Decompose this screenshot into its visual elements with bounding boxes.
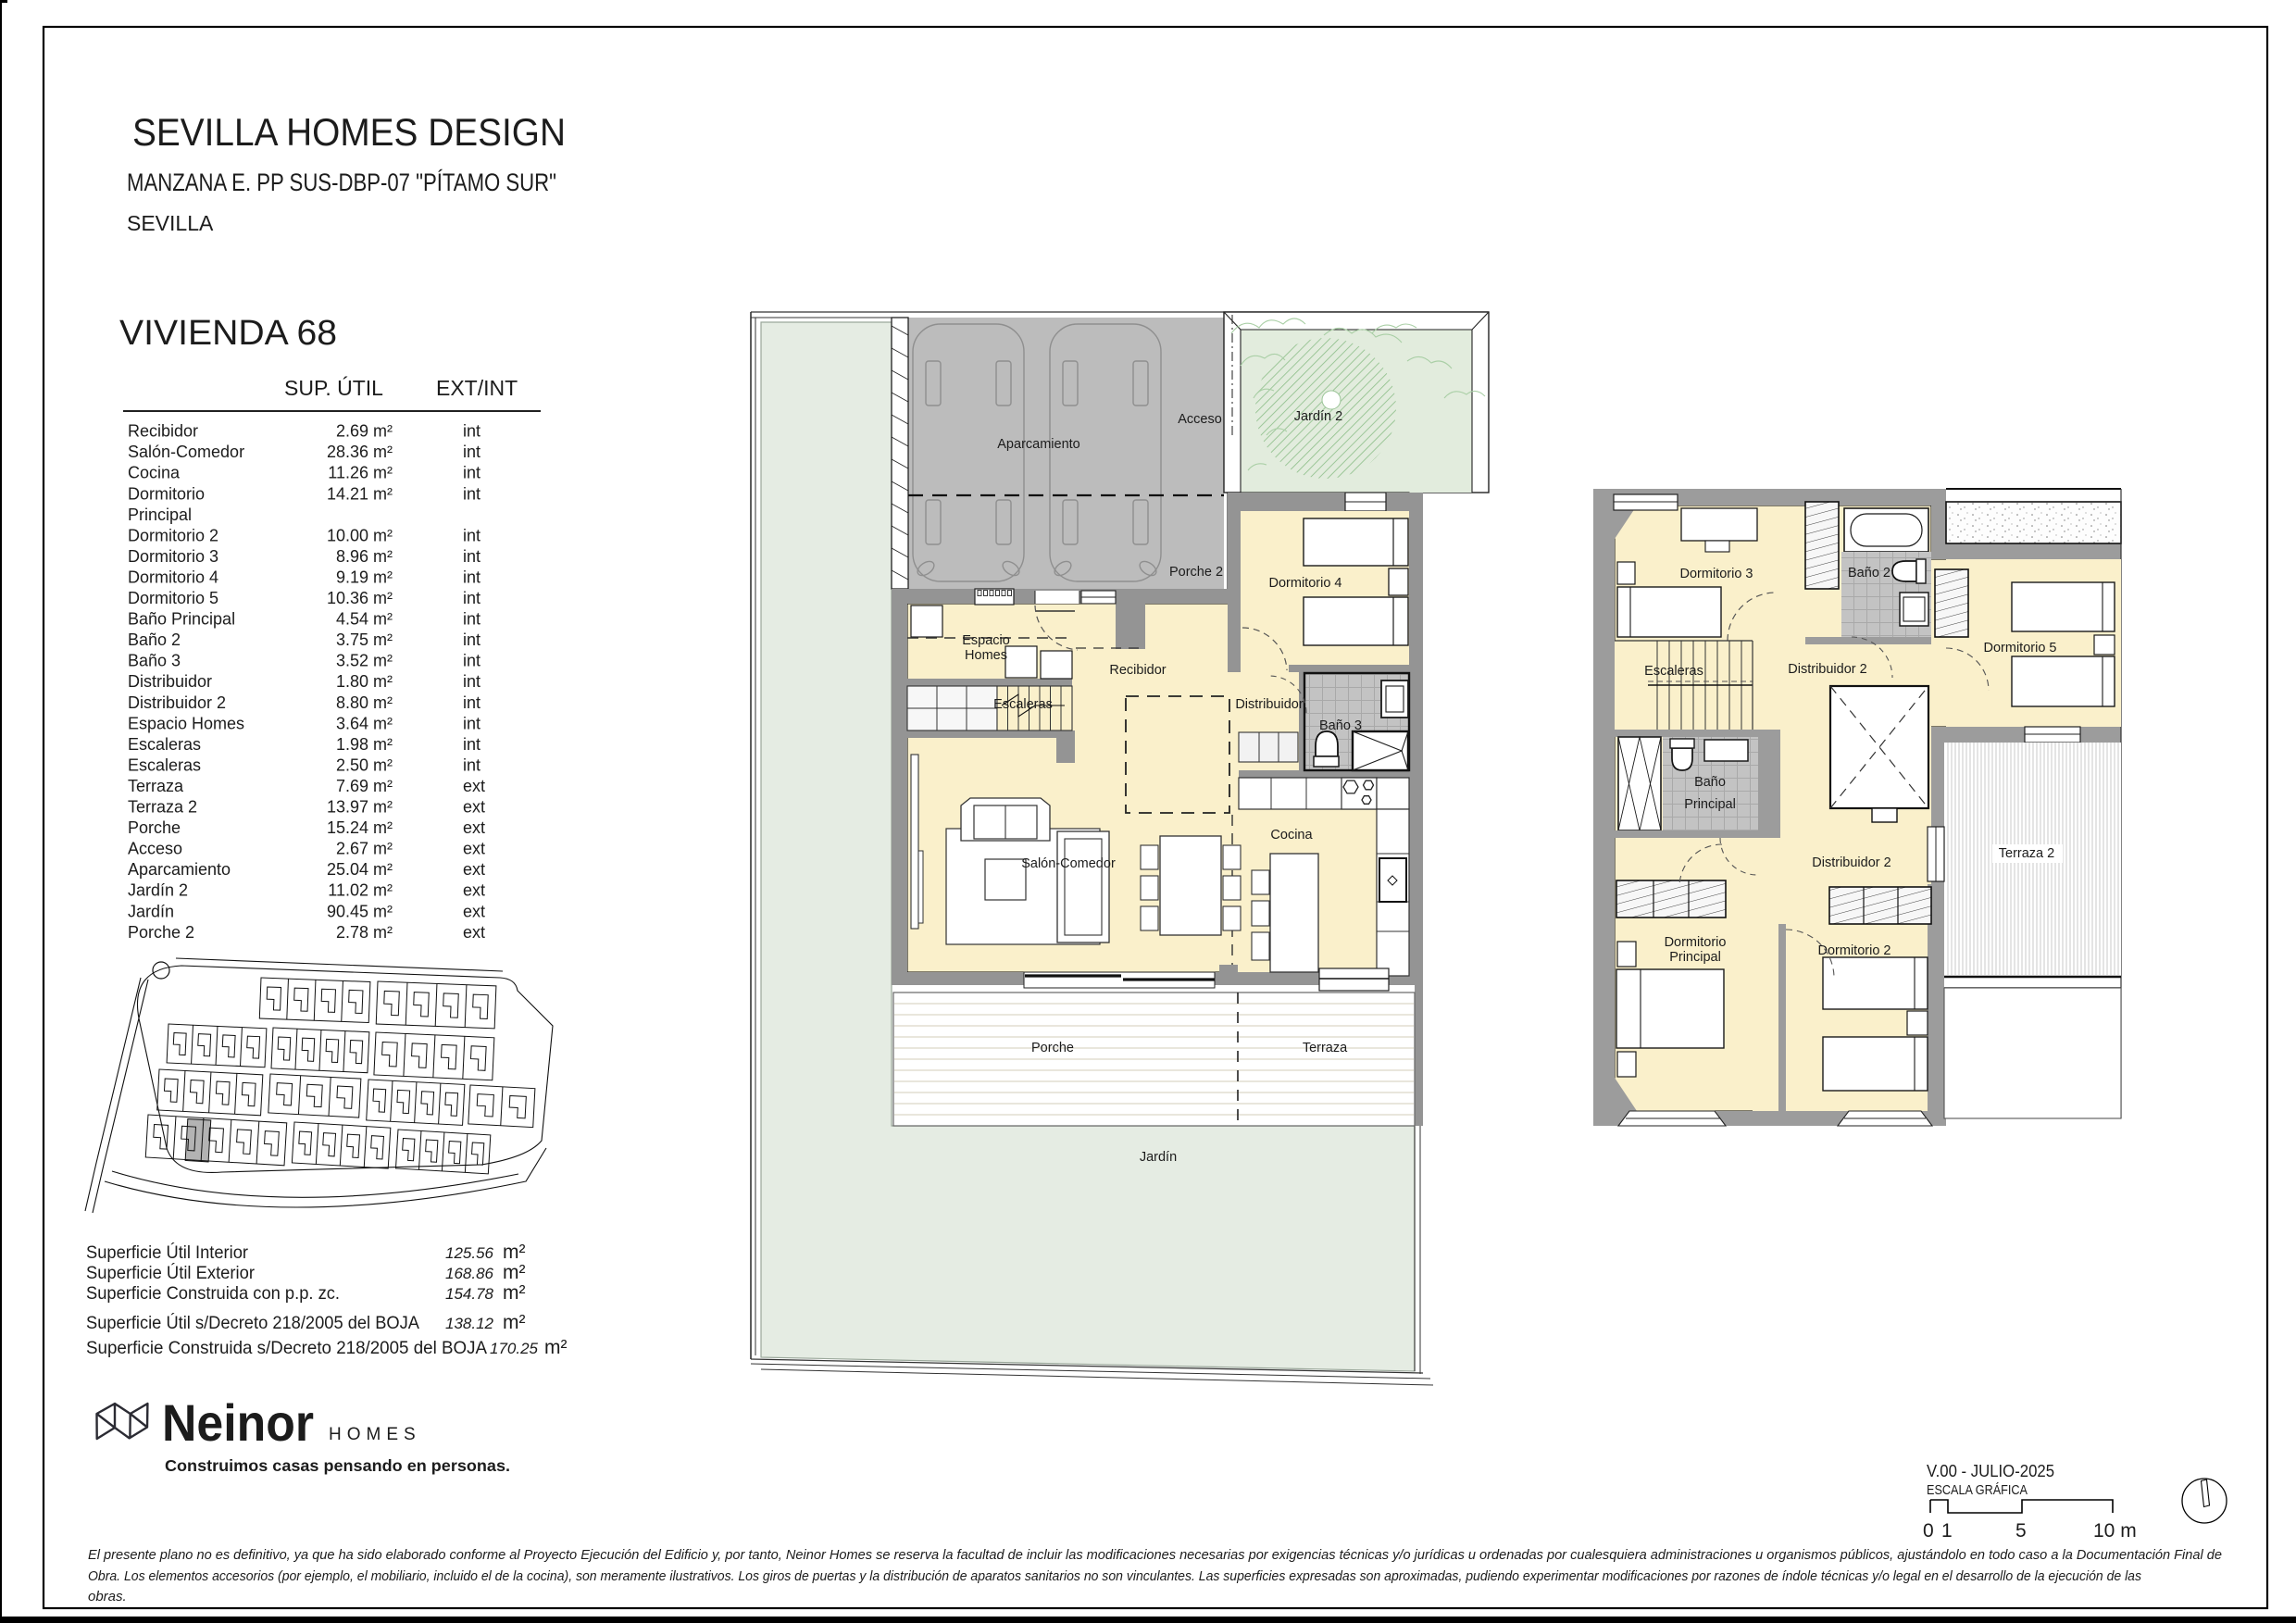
svg-text:Dormitorio 5: Dormitorio 5 (128, 589, 218, 607)
svg-text:Dormitorio 4: Dormitorio 4 (128, 568, 218, 586)
svg-text:int: int (463, 672, 480, 691)
svg-text:8.96 m²: 8.96 m² (336, 547, 393, 566)
svg-text:int: int (463, 610, 480, 629)
svg-text:m²: m² (503, 1242, 526, 1263)
svg-text:1: 1 (1941, 1520, 1953, 1542)
svg-text:Baño 3: Baño 3 (128, 652, 181, 670)
svg-text:Jardín 2: Jardín 2 (128, 881, 188, 900)
svg-text:int: int (463, 422, 480, 441)
svg-text:SUP. ÚTIL: SUP. ÚTIL (284, 376, 383, 400)
svg-text:m²: m² (503, 1262, 526, 1283)
svg-text:13.97 m²: 13.97 m² (327, 798, 393, 817)
svg-text:ext: ext (463, 902, 485, 920)
svg-text:Baño 3: Baño 3 (1319, 718, 1362, 733)
svg-text:Superficie Útil s/Decreto 218/: Superficie Útil s/Decreto 218/2005 del B… (86, 1312, 419, 1333)
svg-text:Dormitorio 3: Dormitorio 3 (1680, 567, 1753, 581)
svg-text:int: int (463, 526, 480, 544)
svg-text:Dormitorio 2: Dormitorio 2 (1818, 943, 1891, 958)
svg-text:V.00 - JULIO-2025: V.00 - JULIO-2025 (1927, 1462, 2054, 1480)
svg-text:Terraza 2: Terraza 2 (1999, 846, 2054, 861)
svg-text:int: int (463, 589, 480, 607)
svg-text:1.98 m²: 1.98 m² (336, 735, 393, 754)
svg-text:Espacio: Espacio (962, 633, 1010, 648)
svg-text:m²: m² (544, 1337, 568, 1358)
svg-text:Escaleras: Escaleras (993, 697, 1053, 712)
svg-text:int: int (463, 547, 480, 566)
svg-text:Dormitorio 4: Dormitorio 4 (1269, 576, 1342, 591)
svg-text:int: int (463, 630, 480, 649)
svg-text:2.67 m²: 2.67 m² (336, 840, 393, 858)
svg-text:Dormitorio 2: Dormitorio 2 (128, 526, 218, 544)
svg-text:Acceso: Acceso (1178, 412, 1222, 427)
svg-text:Dormitorio 5: Dormitorio 5 (1984, 641, 2057, 655)
svg-text:ext: ext (463, 777, 485, 795)
svg-text:10 m: 10 m (2093, 1520, 2137, 1542)
svg-text:El presente plano no es defini: El presente plano no es definitivo, ya q… (88, 1547, 2222, 1563)
svg-text:ext: ext (463, 798, 485, 817)
svg-text:Salón-Comedor: Salón-Comedor (1021, 856, 1116, 871)
svg-text:Superficie Útil Interior: Superficie Útil Interior (86, 1242, 248, 1263)
svg-text:Distribuidor: Distribuidor (1235, 697, 1303, 712)
svg-text:Superficie Construida s/Decret: Superficie Construida s/Decreto 218/2005… (86, 1338, 487, 1358)
svg-text:Superficie Útil Exterior: Superficie Útil Exterior (86, 1262, 255, 1283)
svg-text:Dormitorio: Dormitorio (1665, 935, 1727, 950)
svg-text:2.69 m²: 2.69 m² (336, 422, 393, 441)
svg-text:EXT/INT: EXT/INT (436, 376, 518, 400)
svg-text:Recibidor: Recibidor (1109, 663, 1166, 678)
svg-text:11.02 m²: 11.02 m² (328, 881, 393, 900)
svg-text:SEVILLA HOMES DESIGN: SEVILLA HOMES DESIGN (132, 110, 566, 154)
svg-text:Terraza 2: Terraza 2 (128, 798, 197, 817)
svg-text:Terraza: Terraza (1303, 1041, 1348, 1055)
svg-text:int: int (463, 714, 480, 732)
svg-text:int: int (463, 693, 480, 712)
svg-text:int: int (463, 568, 480, 586)
svg-text:Principal: Principal (1684, 797, 1736, 812)
svg-text:10.00 m²: 10.00 m² (327, 526, 393, 544)
svg-text:ext: ext (463, 881, 485, 900)
svg-text:MANZANA E. PP SUS-DBP-07 "PÍTA: MANZANA E. PP SUS-DBP-07 "PÍTAMO SUR" (127, 169, 556, 196)
svg-text:Baño Principal: Baño Principal (128, 610, 235, 629)
svg-text:Principal: Principal (128, 506, 192, 524)
svg-text:90.45 m²: 90.45 m² (327, 902, 393, 920)
svg-text:170.25: 170.25 (490, 1340, 539, 1357)
svg-text:3.64 m²: 3.64 m² (336, 714, 393, 732)
svg-text:168.86: 168.86 (445, 1265, 494, 1282)
svg-text:Distribuidor 2: Distribuidor 2 (1788, 662, 1866, 677)
svg-text:2.78 m²: 2.78 m² (336, 923, 393, 942)
svg-text:Escaleras: Escaleras (128, 755, 201, 774)
svg-text:int: int (463, 464, 480, 482)
svg-text:Escaleras: Escaleras (1644, 664, 1703, 679)
svg-text:Salón-Comedor: Salón-Comedor (128, 443, 244, 461)
svg-text:Neinor: Neinor (162, 1393, 314, 1452)
svg-text:Recibidor: Recibidor (128, 422, 198, 441)
svg-text:Escaleras: Escaleras (128, 735, 201, 754)
svg-text:Jardín 2: Jardín 2 (1294, 409, 1342, 424)
svg-text:7.69 m²: 7.69 m² (336, 777, 393, 795)
svg-text:Porche 2: Porche 2 (128, 923, 194, 942)
svg-text:5: 5 (2015, 1520, 2027, 1542)
svg-text:obras.: obras. (88, 1589, 127, 1604)
svg-text:Porche 2: Porche 2 (1169, 565, 1223, 580)
svg-text:HOMES: HOMES (329, 1425, 421, 1444)
svg-text:Cocina: Cocina (128, 464, 181, 482)
svg-text:154.78: 154.78 (445, 1285, 494, 1303)
svg-text:1.80 m²: 1.80 m² (336, 672, 393, 691)
svg-text:9.19 m²: 9.19 m² (336, 568, 393, 586)
svg-text:Dormitorio 3: Dormitorio 3 (128, 547, 218, 566)
svg-text:int: int (463, 484, 480, 503)
svg-text:VIVIENDA 68: VIVIENDA 68 (119, 314, 337, 353)
svg-text:int: int (463, 755, 480, 774)
svg-text:11.26 m²: 11.26 m² (328, 464, 393, 482)
svg-text:Principal: Principal (1669, 950, 1721, 965)
svg-text:ext: ext (463, 818, 485, 837)
svg-text:14.21 m²: 14.21 m² (327, 484, 393, 503)
svg-text:ESCALA GRÁFICA: ESCALA GRÁFICA (1927, 1482, 2028, 1498)
svg-text:Porche: Porche (128, 818, 181, 837)
svg-text:ext: ext (463, 860, 485, 879)
svg-text:Distribuidor 2: Distribuidor 2 (128, 693, 226, 712)
svg-text:10.36 m²: 10.36 m² (327, 589, 393, 607)
svg-text:Construimos casas pensando en: Construimos casas pensando en personas. (165, 1456, 510, 1475)
svg-text:4.54 m²: 4.54 m² (336, 610, 393, 629)
svg-text:15.24 m²: 15.24 m² (327, 818, 393, 837)
svg-text:28.36 m²: 28.36 m² (327, 443, 393, 461)
svg-text:Aparcamiento: Aparcamiento (128, 860, 231, 879)
svg-text:Baño: Baño (1694, 775, 1726, 790)
svg-text:138.12: 138.12 (445, 1315, 494, 1332)
svg-text:int: int (463, 443, 480, 461)
svg-text:Distribuidor 2: Distribuidor 2 (1812, 855, 1890, 870)
svg-text:125.56: 125.56 (445, 1244, 494, 1262)
svg-text:Aparcamiento: Aparcamiento (997, 437, 1079, 452)
svg-text:Espacio Homes: Espacio Homes (128, 714, 244, 732)
svg-text:3.52 m²: 3.52 m² (336, 652, 393, 670)
svg-text:Homes: Homes (965, 648, 1007, 663)
svg-text:m²: m² (503, 1312, 526, 1333)
svg-text:Superficie Construida con p.p.: Superficie Construida con p.p. zc. (86, 1283, 340, 1304)
svg-text:2.50 m²: 2.50 m² (336, 755, 393, 774)
svg-text:3.75 m²: 3.75 m² (336, 630, 393, 649)
svg-text:Baño 2: Baño 2 (128, 630, 181, 649)
svg-text:ext: ext (463, 840, 485, 858)
svg-text:Jardín: Jardín (1140, 1150, 1177, 1165)
svg-text:Distribuidor: Distribuidor (128, 672, 212, 691)
svg-text:Acceso: Acceso (128, 840, 182, 858)
svg-text:int: int (463, 735, 480, 754)
svg-text:Obra. Los elementos accesorios: Obra. Los elementos accesorios (por ejem… (88, 1568, 2141, 1584)
svg-text:ext: ext (463, 923, 485, 942)
svg-text:int: int (463, 652, 480, 670)
svg-text:m²: m² (503, 1282, 526, 1304)
svg-text:Porche: Porche (1031, 1041, 1074, 1055)
svg-text:Jardín: Jardín (128, 902, 174, 920)
svg-text:Terraza: Terraza (128, 777, 184, 795)
svg-text:0: 0 (1923, 1520, 1934, 1542)
svg-text:Baño 2: Baño 2 (1848, 566, 1890, 581)
svg-text:SEVILLA: SEVILLA (127, 211, 214, 235)
svg-text:25.04 m²: 25.04 m² (327, 860, 393, 879)
svg-text:Dormitorio: Dormitorio (128, 484, 205, 503)
svg-text:8.80 m²: 8.80 m² (336, 693, 393, 712)
svg-text:Cocina: Cocina (1270, 828, 1313, 843)
